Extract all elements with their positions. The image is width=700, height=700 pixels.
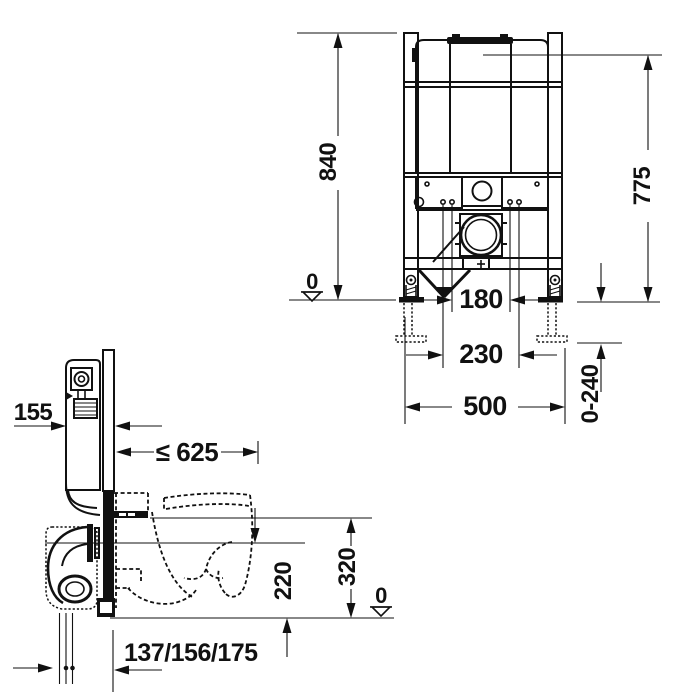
elbow-inner-curve — [62, 544, 87, 566]
arrow-right — [38, 664, 53, 673]
toilet-rim-line — [166, 504, 249, 509]
left-foot-bolt-dot — [410, 279, 413, 282]
datum-triangle — [372, 607, 390, 616]
arrow-down — [644, 287, 653, 302]
arrow-up — [334, 33, 343, 48]
rail-upper — [103, 350, 114, 491]
arrow-right — [550, 403, 565, 412]
arrow-down — [597, 287, 606, 302]
arrow-left — [519, 351, 534, 360]
pipe-center-dot — [70, 666, 75, 671]
datum-zero-label: 0 — [306, 269, 318, 294]
toilet-rear-block — [116, 569, 141, 582]
flush-pipe-opening — [473, 182, 492, 201]
dim-label-155: 155 — [14, 399, 53, 426]
toilet-bowl-bottom — [128, 588, 196, 604]
left-foot-thread — [406, 291, 416, 294]
dim-320: 320 — [334, 518, 361, 618]
toilet-seat-top — [164, 493, 250, 498]
dim-label-500: 500 — [463, 391, 507, 421]
dim-label-840: 840 — [315, 143, 342, 182]
floor-datum-side: 0 — [370, 583, 392, 616]
dim-840: 840 — [297, 33, 397, 300]
dim-label-220: 220 — [270, 562, 297, 601]
right-foot-extended-plate — [537, 336, 567, 342]
toilet-trap3 — [206, 569, 223, 578]
front-view: 840 0 775 0-240 — [289, 33, 662, 424]
arrow-right — [428, 351, 443, 360]
arrow-left — [405, 403, 420, 412]
bolt-hole-inner-right — [508, 200, 512, 204]
arrow-left — [116, 448, 131, 457]
supply-connector-core — [79, 376, 85, 382]
cistern-body — [416, 40, 548, 173]
right-foot-thread — [550, 287, 560, 290]
mounting-bar-slot — [119, 513, 126, 516]
arrow-left — [510, 296, 525, 305]
funnel-left — [419, 270, 444, 297]
toilet-trap2 — [218, 569, 225, 593]
supply-connector-ring — [75, 372, 89, 386]
arrow-right — [51, 422, 66, 431]
supply-pipes — [13, 613, 75, 684]
toilet-front — [225, 495, 252, 597]
dim-500: 500 — [405, 317, 565, 424]
arrow-down — [347, 603, 356, 618]
toilet-trap — [184, 542, 232, 579]
arrow-left — [115, 422, 130, 431]
arrow-up — [597, 344, 606, 359]
dim-label-0-240: 0-240 — [577, 364, 604, 423]
mounting-plates — [404, 173, 562, 210]
installation-frame-diagram: 840 0 775 0-240 — [0, 0, 700, 700]
drain-elbow — [46, 524, 99, 609]
fixing-hole-outer-right — [517, 200, 521, 204]
rail-lower — [103, 490, 114, 600]
dim-label-pipe-offsets: 137/156/175 — [124, 639, 258, 667]
toilet-outline — [114, 493, 252, 608]
bolt-hole-inner-left — [450, 200, 454, 204]
dim-label-625: ≤ 625 — [156, 437, 218, 467]
arrow-right — [243, 448, 258, 457]
cistern-side-fitting — [412, 48, 418, 62]
technical-drawing: 840 0 775 0-240 — [0, 0, 700, 700]
dim-pipe-offsets: 137/156/175 — [113, 630, 258, 692]
arrow-up — [283, 618, 292, 633]
left-foot-thread — [406, 287, 416, 290]
left-foot-extended-plate — [396, 336, 426, 342]
pipe-center-dot — [64, 666, 69, 671]
datum-zero-label-side: 0 — [375, 583, 387, 608]
inspection-lid — [447, 37, 513, 44]
rail-foot-inner — [100, 602, 112, 613]
arrow-up — [347, 518, 356, 533]
elbow-opening-inner — [66, 582, 84, 596]
dim-label-180: 180 — [459, 284, 503, 314]
dim-label-230: 230 — [459, 339, 503, 369]
drain-channel — [463, 259, 489, 268]
mounting-bar-slot — [128, 513, 135, 516]
right-foot-thread — [550, 291, 560, 294]
dim-label-320: 320 — [334, 548, 361, 587]
dim-label-775: 775 — [629, 167, 656, 206]
small-hole-right — [535, 182, 539, 186]
right-foot-bolt-dot — [554, 279, 557, 282]
drain-outlet-outer — [461, 215, 501, 255]
elbow-opening — [59, 576, 91, 602]
dim-0-240: 0-240 — [577, 263, 622, 423]
drain-outlet-inner — [466, 220, 497, 251]
fixing-hole-outer-left — [441, 200, 445, 204]
arrow-up — [644, 55, 653, 70]
cistern-clip — [66, 392, 73, 400]
small-hole-left — [425, 182, 429, 186]
dim-220: 220 — [251, 508, 298, 657]
side-view: 155 ≤ 625 320 220 — [13, 350, 394, 692]
arrow-down — [334, 285, 343, 300]
toilet-inner-bowl — [152, 512, 194, 598]
drain-socket — [433, 214, 507, 262]
dim-625: ≤ 625 — [116, 437, 258, 467]
